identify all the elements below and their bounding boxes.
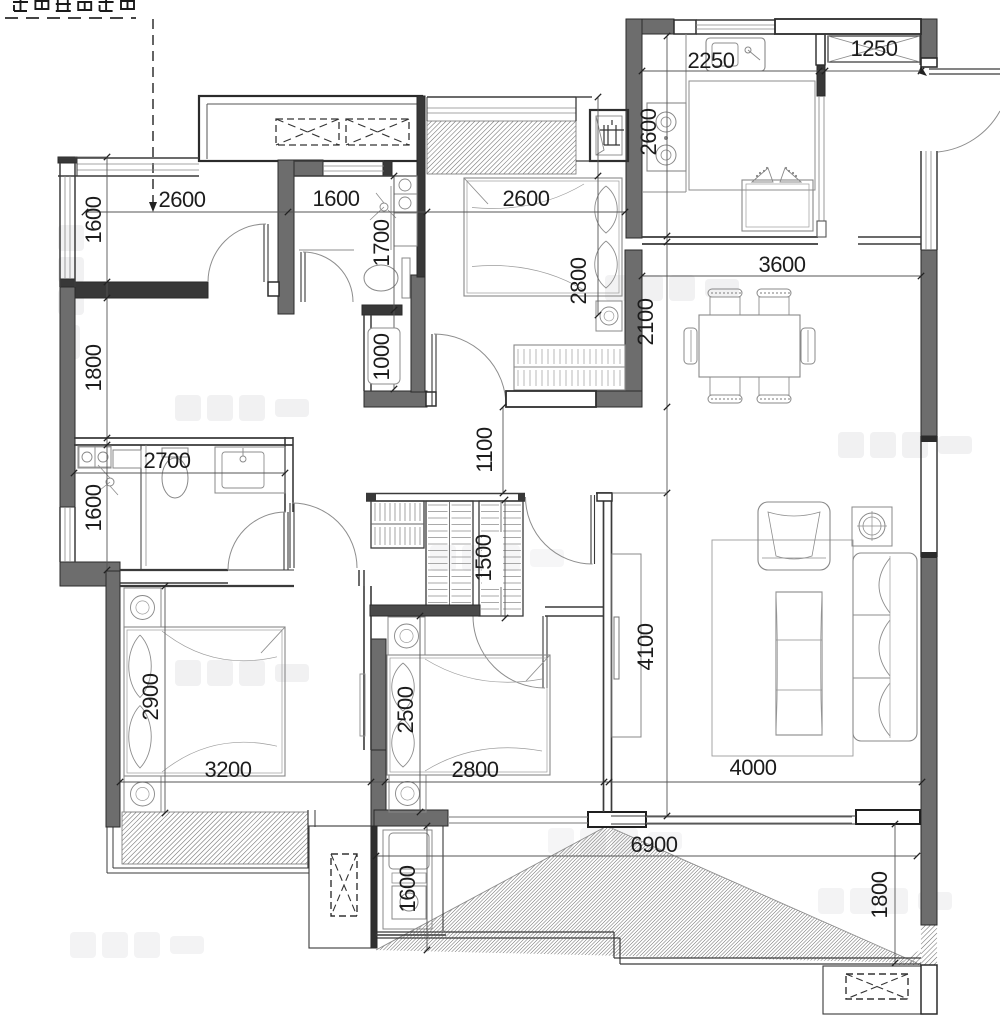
svg-text:2900: 2900 — [138, 673, 163, 720]
svg-text:6900: 6900 — [631, 832, 678, 857]
svg-text:1600: 1600 — [395, 865, 420, 912]
svg-text:2600: 2600 — [503, 186, 550, 211]
svg-text:2800: 2800 — [566, 257, 591, 304]
svg-text:2700: 2700 — [144, 448, 191, 473]
svg-text:2800: 2800 — [452, 757, 499, 782]
svg-text:3600: 3600 — [759, 252, 806, 277]
svg-text:2250: 2250 — [688, 48, 735, 73]
svg-text:1100: 1100 — [472, 427, 497, 473]
svg-text:2500: 2500 — [393, 686, 418, 733]
svg-text:1600: 1600 — [81, 196, 106, 243]
svg-text:1000: 1000 — [369, 333, 394, 380]
svg-text:1500: 1500 — [471, 534, 496, 581]
svg-text:2600: 2600 — [636, 108, 661, 155]
svg-text:1700: 1700 — [369, 219, 394, 266]
svg-text:1600: 1600 — [81, 484, 106, 531]
svg-text:4000: 4000 — [730, 755, 777, 780]
svg-text:1600: 1600 — [313, 186, 360, 211]
svg-text:4100: 4100 — [633, 623, 658, 670]
svg-text:2100: 2100 — [633, 298, 658, 345]
svg-text:3200: 3200 — [205, 757, 252, 782]
svg-text:1800: 1800 — [81, 344, 106, 391]
svg-text:2600: 2600 — [159, 187, 206, 212]
svg-text:1800: 1800 — [867, 871, 892, 918]
svg-text:1250: 1250 — [851, 36, 898, 61]
